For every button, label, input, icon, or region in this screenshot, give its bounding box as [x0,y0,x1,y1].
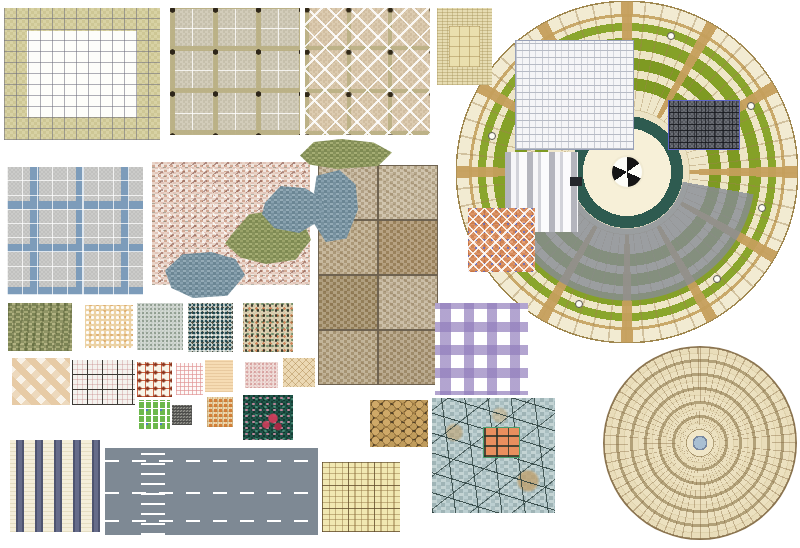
swatch-border-grid-tile [4,8,160,140]
swatch-dark-grid-tile [72,360,135,405]
swatch-parquet-border [437,8,492,85]
swatch-dark-ashlar [668,100,740,150]
slate-tile [379,166,437,219]
swatch-pebble-paving [370,400,428,447]
fan-icon [612,157,642,187]
swatch-diamond-checker [12,358,70,405]
light-marker [747,102,755,110]
swatch-olive-stone [8,303,72,351]
swatch-dark-chip [570,177,582,186]
swatch-peach-plain [205,360,233,392]
swatch-vertical-stripes [10,440,100,532]
swatch-blue-grout-tile [7,167,143,295]
light-marker [488,132,496,140]
swatch-terrazzo-gray [137,303,183,350]
swatch-crazy-paving [432,398,555,513]
swatch-pink-speckle [245,362,278,388]
slate-tile [319,331,377,384]
swatch-diagonal-cross-paving [305,8,430,135]
light-marker [758,204,766,212]
swatch-terrazzo-dark [188,303,233,352]
swatch-diagonal-weave [283,358,315,387]
light-marker [667,32,675,40]
light-marker [575,300,583,308]
swatch-terracotta-inset [483,427,520,458]
slate-tile [379,221,437,274]
slate-tile [379,331,437,384]
texture-sheet [0,0,800,548]
flagstone-olive [300,139,392,169]
swatch-red-grid-tile [137,362,172,397]
swatch-granite-dot-paving [170,8,300,135]
swatch-terrazzo-tan [243,303,293,352]
swatch-green-mosaic [137,400,170,430]
swatch-yellow-grid [322,462,400,532]
swatch-road-markings [105,448,318,535]
concentric-paver-circle [603,346,797,540]
swatch-white-brick [515,40,634,150]
swatch-terracotta-mosaic [468,208,535,272]
swatch-terrazzo-peach [85,305,133,348]
slate-tile [379,276,437,329]
swatch-purple-plaid [435,303,528,395]
slate-tile [319,276,377,329]
swatch-fine-pink-grid [176,363,203,395]
swatch-gray-chip [172,405,192,425]
swatch-orange-weave [207,397,233,427]
swatch-green-floral-carpet [243,395,293,440]
light-marker [713,275,721,283]
